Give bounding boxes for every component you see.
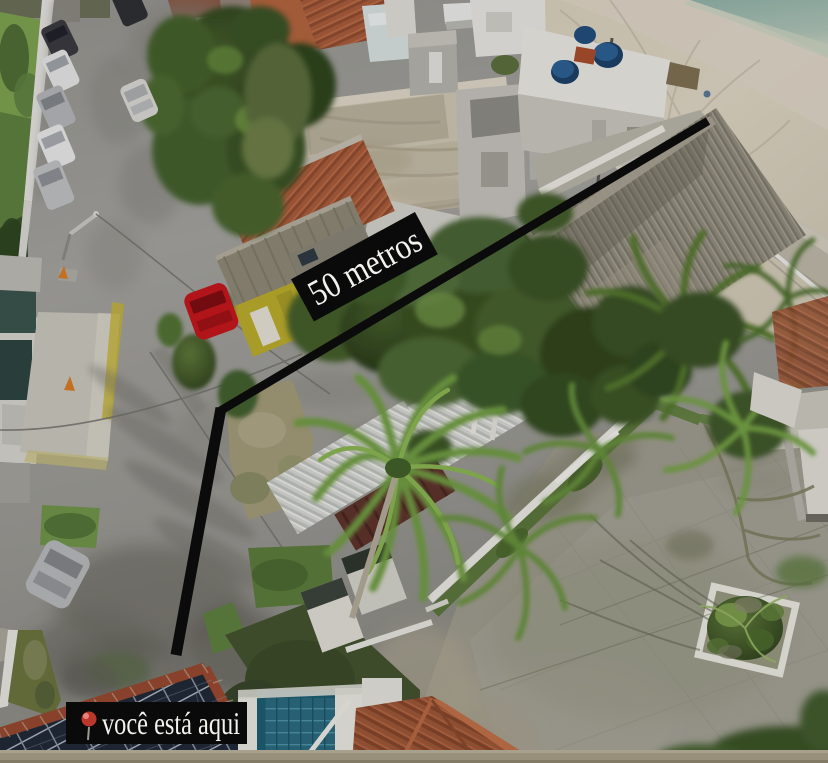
svg-text:você está aqui: você está aqui: [102, 705, 240, 741]
